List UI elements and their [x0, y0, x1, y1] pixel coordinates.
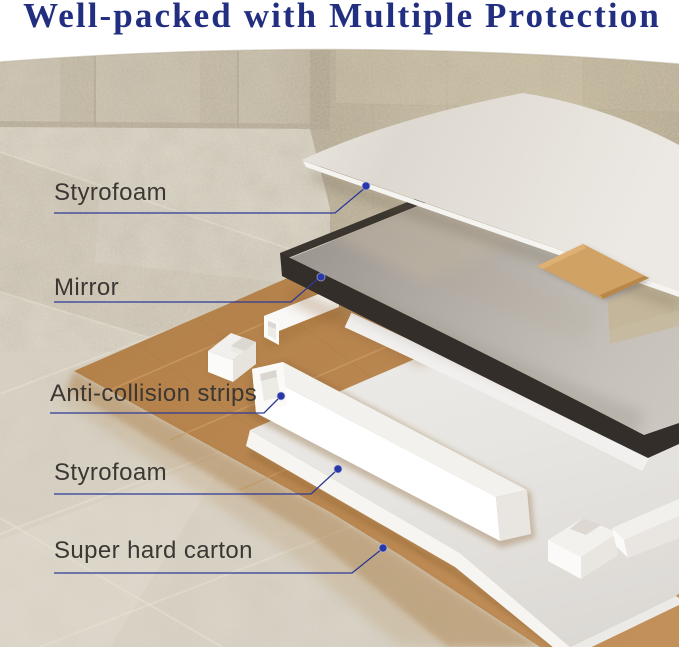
svg-text:Mirror: Mirror	[54, 274, 119, 301]
svg-text:Styrofoam: Styrofoam	[54, 179, 167, 206]
svg-text:Styrofoam: Styrofoam	[54, 459, 167, 486]
svg-text:Anti-collision strips: Anti-collision strips	[50, 380, 257, 407]
svg-text:Well-packed with Multiple Prot: Well-packed with Multiple Protection	[23, 0, 661, 35]
svg-text:Super hard carton: Super hard carton	[54, 537, 253, 564]
